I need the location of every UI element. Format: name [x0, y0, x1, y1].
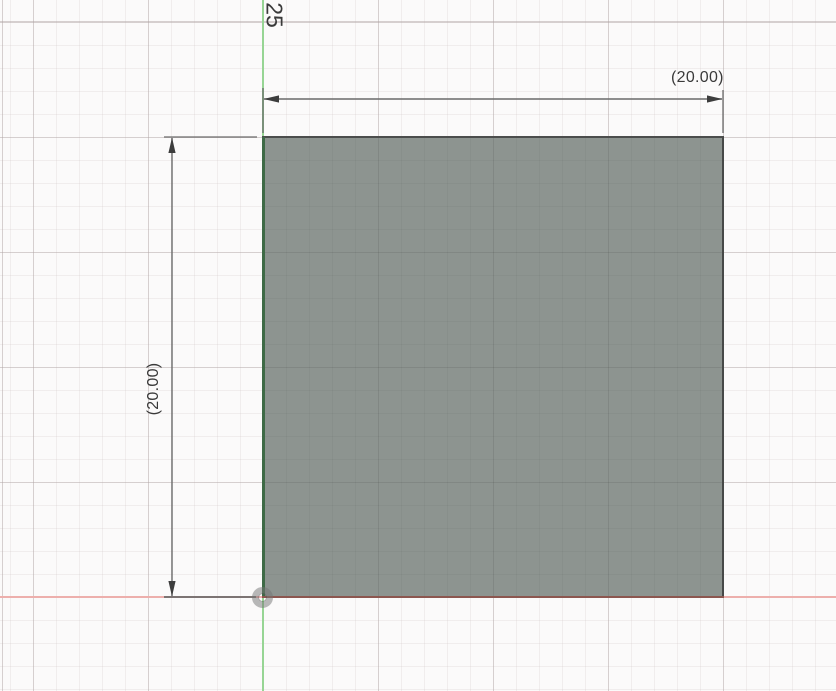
vertical-dimension-arrow-bottom-icon [168, 581, 175, 597]
vertical-dimension-arrow-top-icon [168, 138, 175, 154]
vertical-dimension-label[interactable]: (20.00) [145, 363, 163, 416]
horizontal-dimension-label[interactable]: (20.00) [671, 69, 724, 87]
partial-top-dimension-label: 25 [261, 2, 288, 28]
origin-point[interactable] [252, 587, 273, 608]
horizontal-dimension-arrow-left-icon [264, 95, 280, 102]
dimension-overlay [0, 0, 836, 691]
horizontal-dimension-arrow-right-icon [707, 95, 723, 102]
sketch-canvas: (20.00) (20.00) 25 [0, 0, 836, 691]
